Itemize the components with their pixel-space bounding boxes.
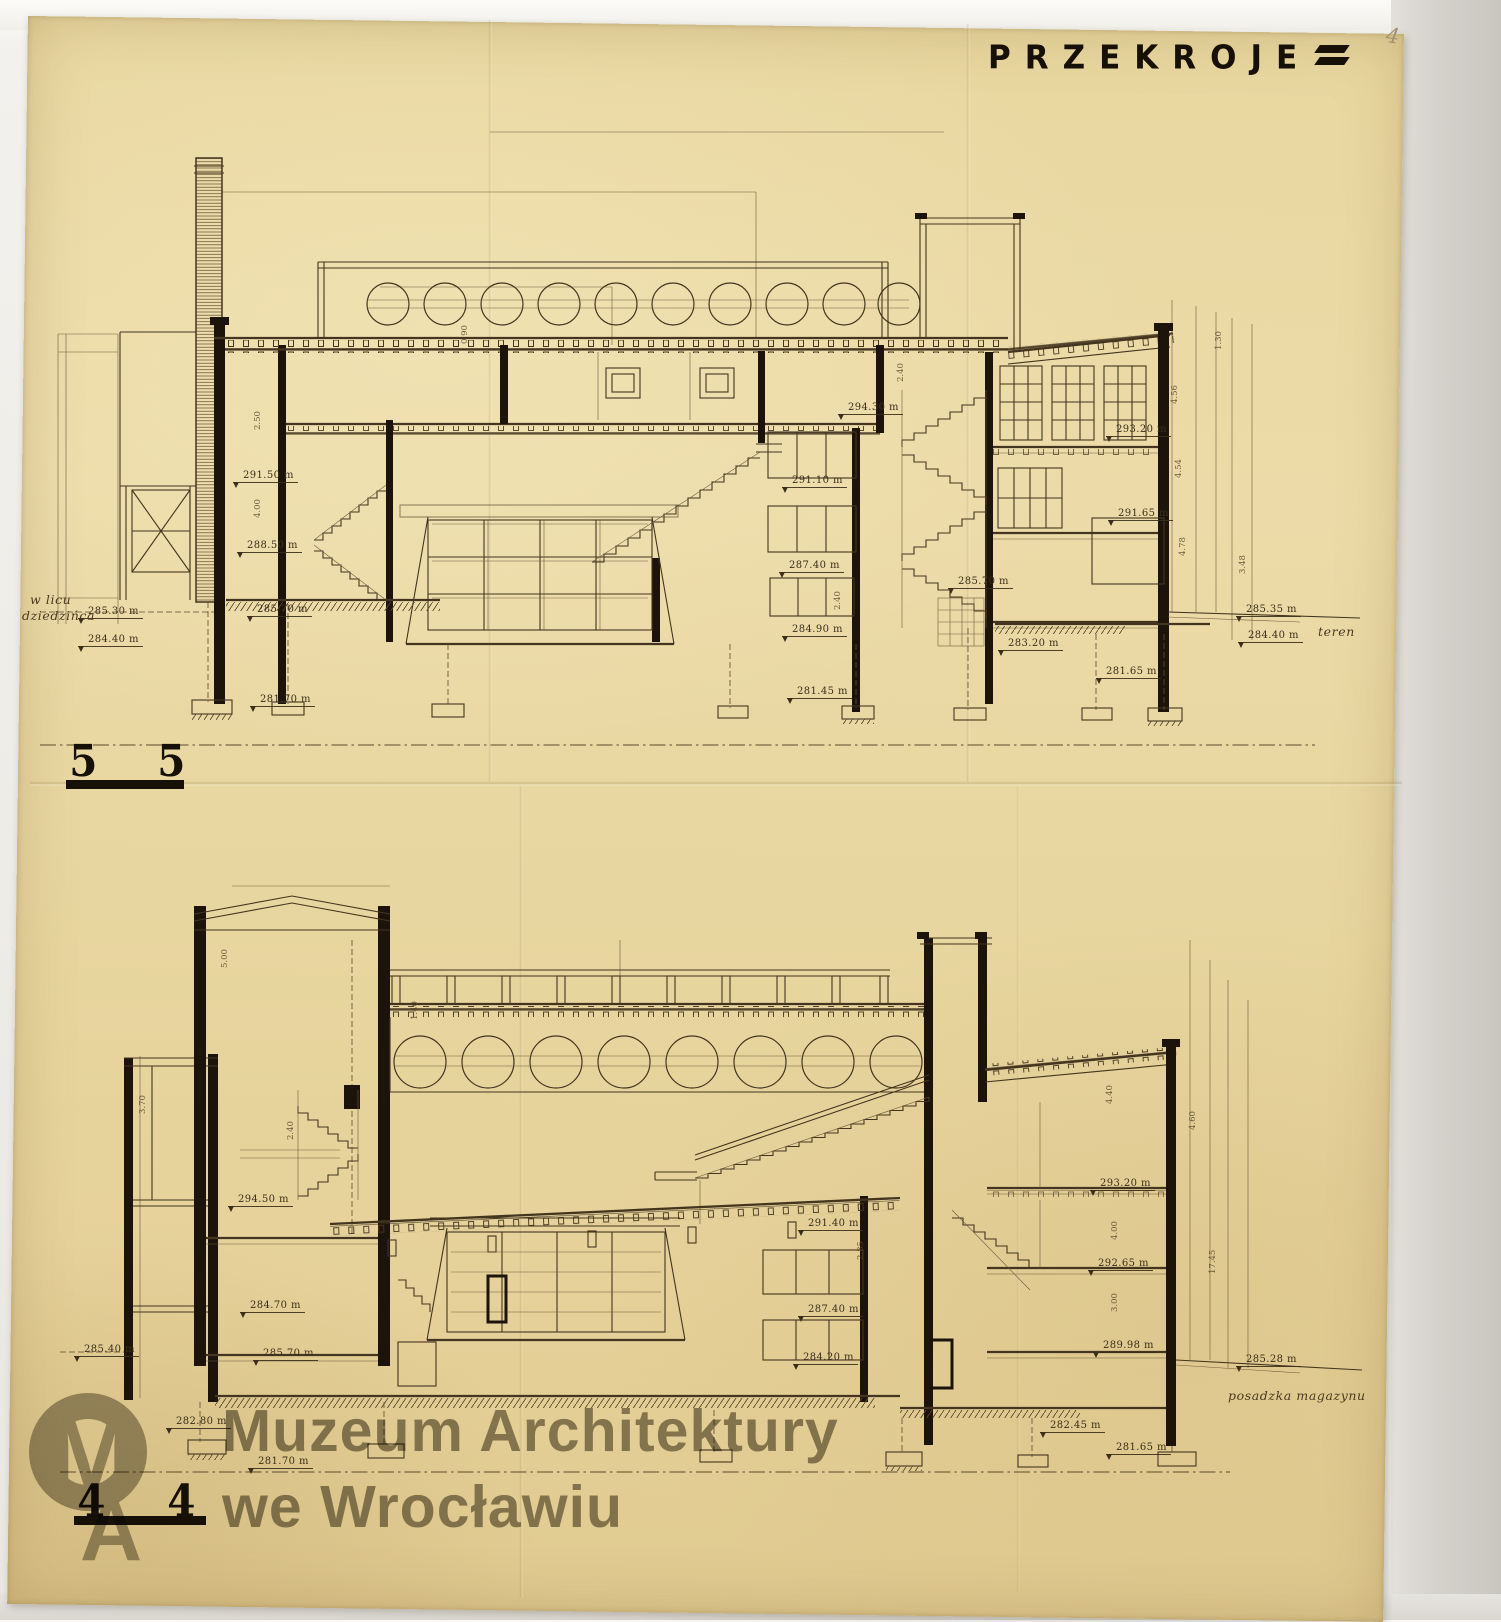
- watermark-line1: Muzeum Architektury: [222, 1402, 839, 1461]
- museum-watermark-logo: M A: [0, 0, 1501, 1620]
- svg-text:A: A: [80, 1483, 142, 1579]
- watermark-line2: we Wrocławiu: [222, 1478, 623, 1537]
- archival-scan-page: { "colors": { "paper": "#ead9a4", "ink":…: [0, 0, 1501, 1620]
